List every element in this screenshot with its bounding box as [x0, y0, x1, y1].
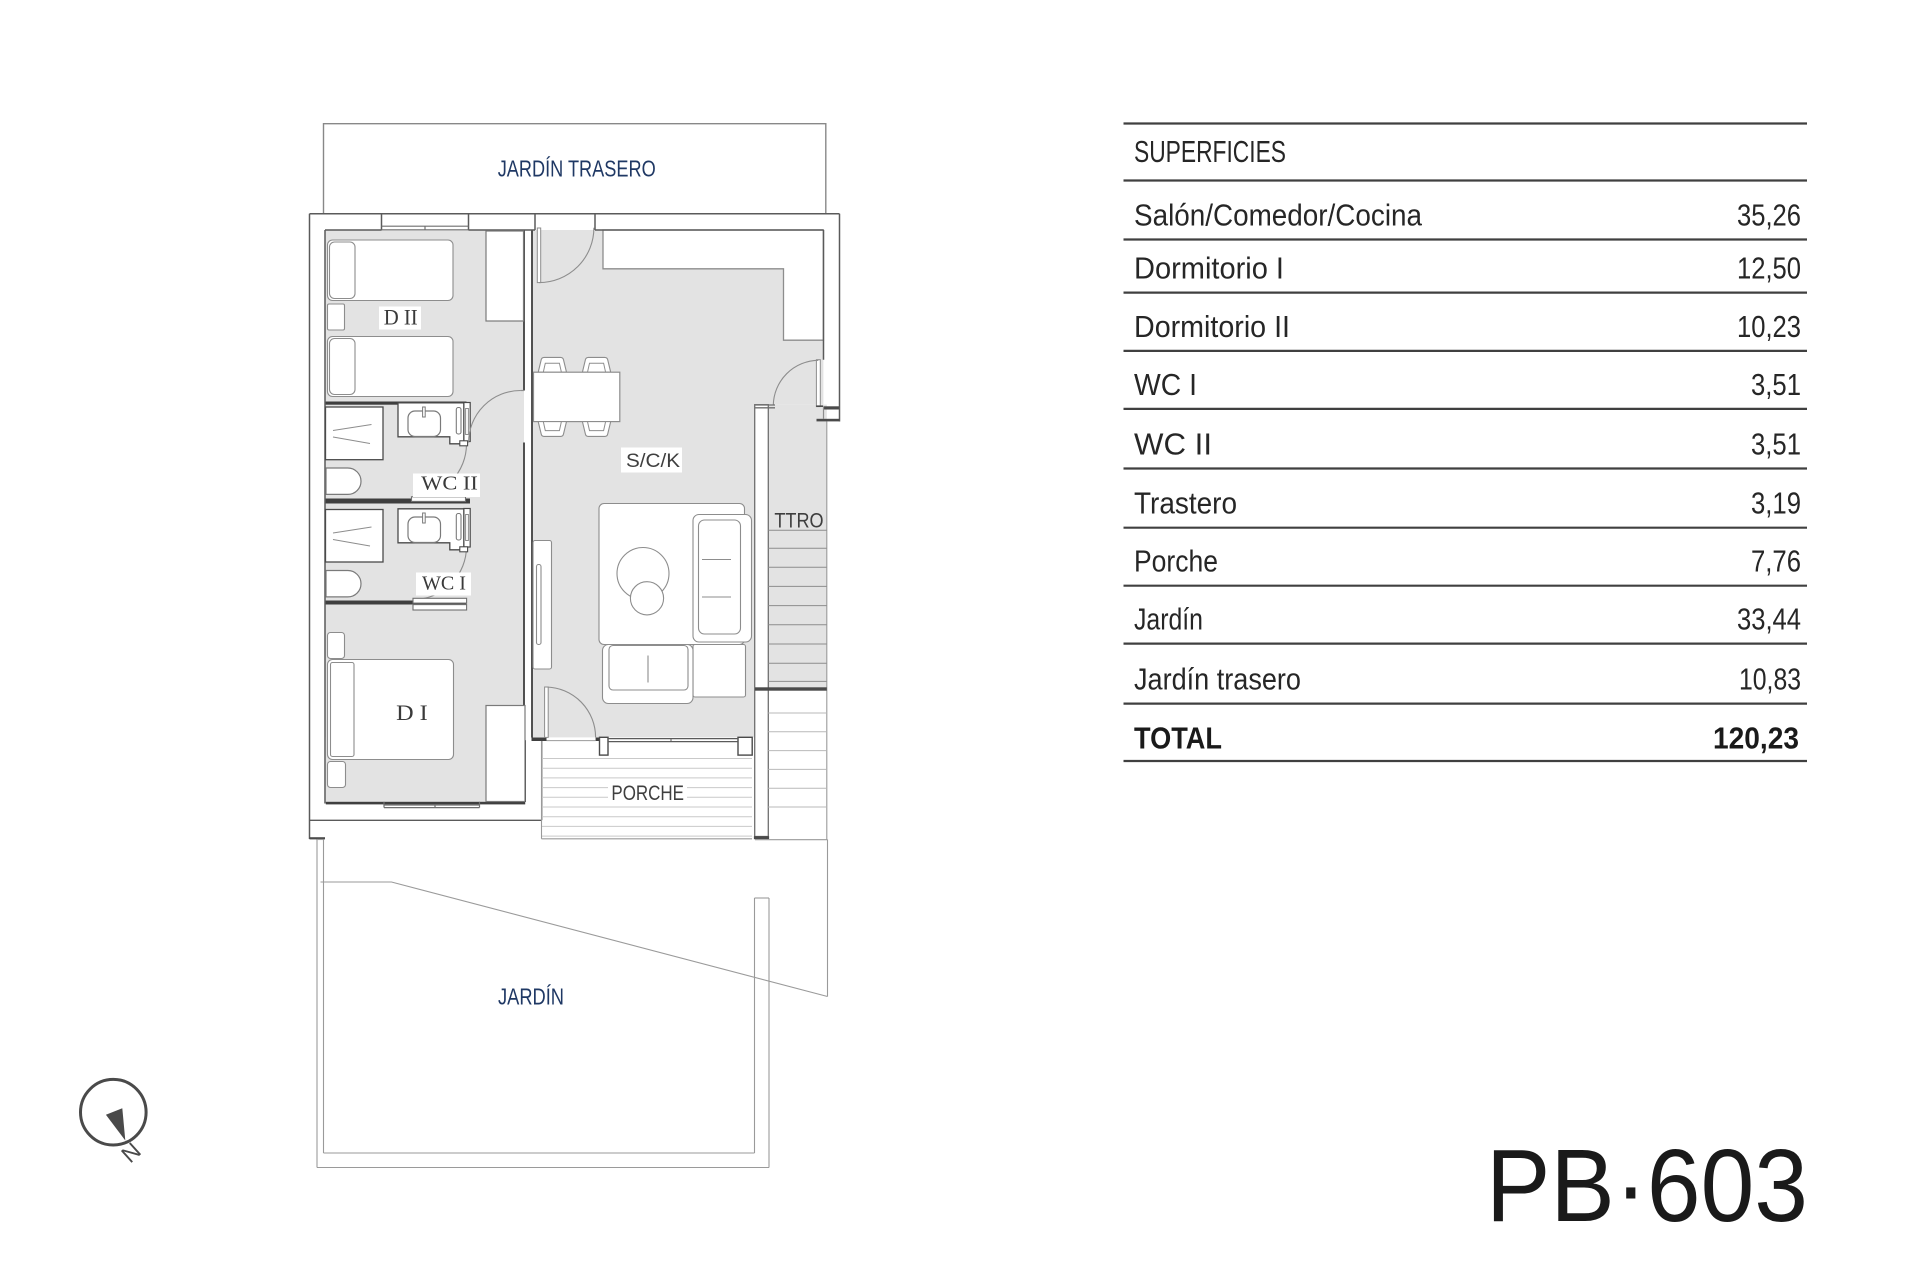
- svg-text:TOTAL: TOTAL: [1134, 721, 1222, 756]
- svg-text:35,26: 35,26: [1737, 198, 1801, 233]
- svg-text:7,76: 7,76: [1751, 544, 1801, 579]
- svg-text:TTRO: TTRO: [774, 510, 823, 533]
- svg-text:D I: D I: [396, 700, 428, 725]
- svg-text:Jardín: Jardín: [1134, 602, 1203, 637]
- svg-text:120,23: 120,23: [1713, 721, 1799, 756]
- svg-text:33,44: 33,44: [1737, 602, 1801, 637]
- svg-text:Trastero: Trastero: [1134, 486, 1237, 521]
- svg-text:12,50: 12,50: [1737, 251, 1801, 286]
- svg-text:JARDÍN: JARDÍN: [498, 984, 564, 1010]
- svg-text:D II: D II: [384, 305, 418, 330]
- svg-text:Porche: Porche: [1134, 544, 1218, 579]
- svg-text:PB·603: PB·603: [1486, 1128, 1808, 1243]
- svg-text:3,51: 3,51: [1751, 427, 1801, 462]
- svg-text:SUPERFICIES: SUPERFICIES: [1134, 134, 1286, 169]
- svg-text:WC II: WC II: [421, 473, 478, 495]
- svg-text:10,83: 10,83: [1739, 662, 1801, 697]
- svg-text:3,19: 3,19: [1751, 486, 1801, 521]
- svg-text:PORCHE: PORCHE: [611, 782, 684, 805]
- svg-text:WC I: WC I: [1134, 367, 1197, 402]
- svg-text:10,23: 10,23: [1737, 309, 1801, 344]
- svg-text:WC I: WC I: [422, 573, 466, 595]
- svg-text:S/C/K: S/C/K: [626, 450, 680, 472]
- svg-text:Dormitorio I: Dormitorio I: [1134, 251, 1284, 286]
- svg-text:N: N: [116, 1137, 146, 1167]
- svg-text:JARDÍN TRASERO: JARDÍN TRASERO: [498, 156, 656, 182]
- svg-text:3,51: 3,51: [1751, 367, 1801, 402]
- svg-text:Dormitorio II: Dormitorio II: [1134, 309, 1290, 344]
- svg-text:WC II: WC II: [1134, 427, 1212, 462]
- svg-text:Jardín trasero: Jardín trasero: [1134, 662, 1301, 697]
- svg-text:Salón/Comedor/Cocina: Salón/Comedor/Cocina: [1134, 198, 1423, 233]
